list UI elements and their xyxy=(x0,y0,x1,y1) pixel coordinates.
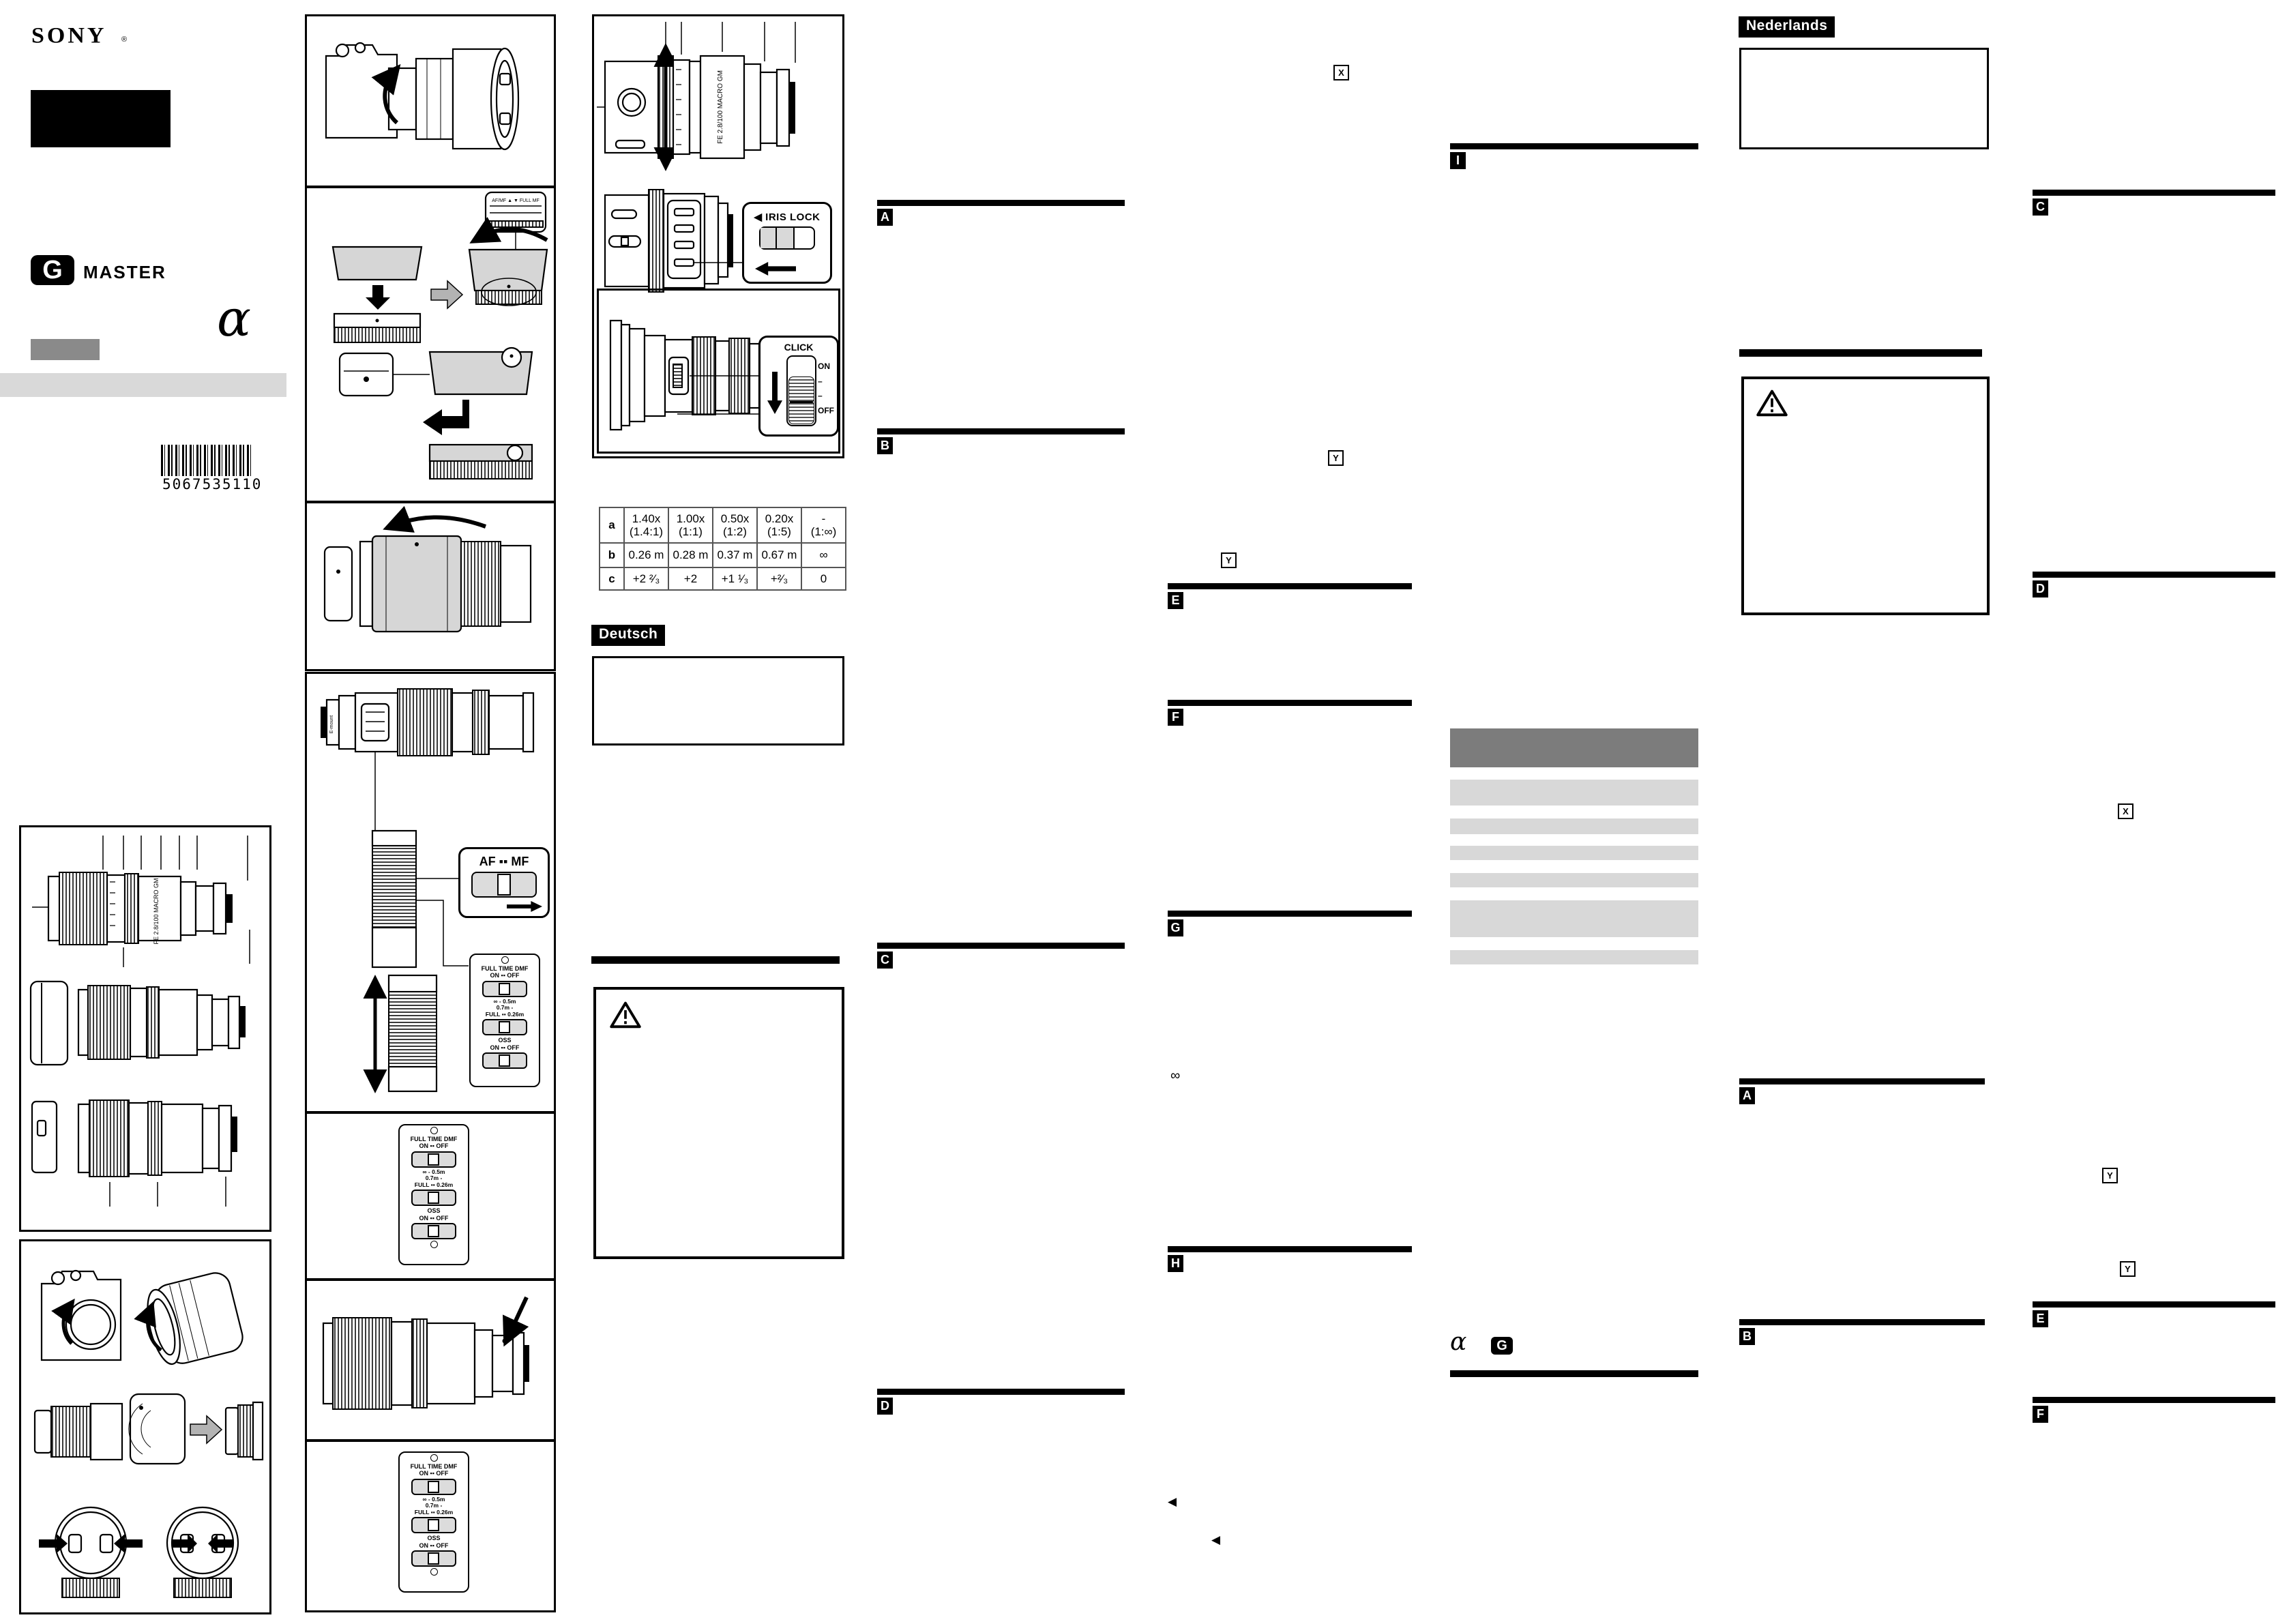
section-marker-c: C xyxy=(877,951,893,969)
iris-lock-callout: ◀ IRIS LOCK xyxy=(742,202,832,284)
section-marker-b: B xyxy=(1739,1328,1755,1345)
cell: +²⁄₃ xyxy=(757,567,801,590)
left-arrow-icon xyxy=(755,262,796,276)
oss-on-off-label: ON ▪▪ OFF xyxy=(400,1215,468,1222)
section-bar xyxy=(1168,700,1412,706)
camera-lens-drawing xyxy=(307,16,550,181)
iris-lock-label: ◀ IRIS LOCK xyxy=(744,211,830,223)
hood-attach-drawing: AF/MF ▲ ▼ FULL MF xyxy=(307,188,550,497)
full-time-dmf-label: FULL TIME DMF xyxy=(400,1463,468,1470)
section-bar xyxy=(877,428,1125,434)
section-bar xyxy=(1168,1246,1412,1252)
section-bar xyxy=(2033,1301,2275,1308)
click-label: CLICK xyxy=(760,342,837,353)
model-name-block xyxy=(31,90,171,147)
lens-name: FE 2.8/100 MACRO GM xyxy=(717,70,724,144)
section-marker-g: G xyxy=(1168,919,1183,936)
cell: 0.67 m xyxy=(757,543,801,567)
barcode xyxy=(161,445,251,476)
click-off-label: OFF xyxy=(818,404,834,419)
cell: 0.26 m xyxy=(624,543,668,567)
click-on-label: ON xyxy=(818,359,834,374)
lens-instruction-sheet: SONY ® G MASTER α 5067535110 FE 2.8/100 … xyxy=(0,0,2289,1624)
focus-limiter-switch xyxy=(411,1517,456,1533)
spec-table-header xyxy=(1450,728,1698,767)
spec-table-row xyxy=(1450,818,1698,834)
af-mf-callout: AF ▪▪ MF xyxy=(458,847,550,918)
cell: +2 ²⁄₃ xyxy=(624,567,668,590)
oss-switch xyxy=(482,1052,527,1069)
section-bar xyxy=(2033,1397,2275,1403)
range-label-3: FULL ▪▪ 0.26m xyxy=(400,1509,468,1516)
row-label-a: a xyxy=(600,507,624,543)
alpha-logo: α xyxy=(217,293,251,344)
section-marker-e: E xyxy=(2033,1310,2048,1327)
ref-marker-y: Y xyxy=(1328,450,1344,466)
section-marker-b: B xyxy=(877,437,893,454)
barcode-number: 5067535110 xyxy=(162,476,262,492)
switch-panel-2: FULL TIME DMF ON ▪▪ OFF ∞ - 0.5m 0.7m - … xyxy=(398,1124,469,1265)
section-bar xyxy=(2033,572,2275,578)
g-master-badge: G xyxy=(31,255,74,285)
screw-icon xyxy=(501,956,509,964)
cell: +2 xyxy=(668,567,713,590)
on-off-label: ON ▪▪ OFF xyxy=(400,1142,468,1149)
oss-label: OSS xyxy=(471,1037,539,1044)
page-edge-strip xyxy=(0,373,286,397)
section-marker-d: D xyxy=(877,1398,893,1415)
cell: 0.37 m xyxy=(713,543,757,567)
row-label-b: b xyxy=(600,543,624,567)
row-label-c: c xyxy=(600,567,624,590)
screw-icon xyxy=(430,1241,438,1248)
cell: 0.28 m xyxy=(668,543,713,567)
section-marker-e: E xyxy=(1168,592,1183,609)
screw-icon xyxy=(430,1127,438,1134)
oss-on-off-label: ON ▪▪ OFF xyxy=(471,1044,539,1051)
g-letter: G xyxy=(42,256,63,285)
lens-parts-drawing: FE 2.8/100 MACRO GM xyxy=(21,827,265,1226)
cell: 0.50x(1:2) xyxy=(713,507,757,543)
g-letter: G xyxy=(1496,1338,1507,1354)
mount-index-drawing xyxy=(307,1281,550,1435)
click-dash: – xyxy=(818,374,834,389)
ref-marker-x: X xyxy=(2118,803,2133,819)
mounting-drawing xyxy=(21,1241,265,1608)
section-bar xyxy=(1739,1319,1985,1325)
cell: -(1:∞) xyxy=(801,507,846,543)
ref-marker-y: Y xyxy=(2102,1168,2118,1183)
figure-mount-index xyxy=(305,1279,556,1441)
e-mount-text: E-mount xyxy=(329,715,334,734)
hood-scale-text: AF/MF ▲ ▼ FULL MF xyxy=(492,198,540,203)
on-off-label: ON ▪▪ OFF xyxy=(400,1470,468,1477)
section-bar xyxy=(1450,143,1698,149)
dmf-switch xyxy=(482,981,527,997)
section-marker-f: F xyxy=(2033,1406,2048,1423)
oss-label: OSS xyxy=(400,1535,468,1541)
dmf-switch xyxy=(411,1479,456,1495)
g-badge-small: G xyxy=(1491,1337,1513,1355)
click-slider xyxy=(786,355,816,426)
figure-camera-lens xyxy=(305,14,556,188)
ref-marker-y: Y xyxy=(2120,1261,2136,1277)
spec-table-row xyxy=(1450,873,1698,887)
left-triangle-glyph: ◀ xyxy=(1168,1495,1177,1509)
oss-switch xyxy=(411,1223,456,1239)
figure-lens-parts: FE 2.8/100 MACRO GM xyxy=(19,825,271,1232)
section-bar xyxy=(877,1389,1125,1395)
cell: 1.00x(1:1) xyxy=(668,507,713,543)
nederlands-intro-box xyxy=(1739,48,1989,149)
section-marker-a: A xyxy=(877,209,893,226)
alpha-logo-small: α xyxy=(1450,1330,1466,1355)
macro-ratio-table: a 1.40x(1.4:1) 1.00x(1:1) 0.50x(1:2) 0.2… xyxy=(599,507,846,591)
left-triangle-glyph: ◀ xyxy=(1211,1533,1220,1547)
language-label-nederlands: Nederlands xyxy=(1739,16,1835,38)
nederlands-warning-box xyxy=(1741,377,1990,615)
section-marker-i: I xyxy=(1450,152,1466,169)
section-bar xyxy=(2033,190,2275,196)
figure-hood-storage xyxy=(305,501,556,671)
screw-icon xyxy=(430,1568,438,1576)
spec-table-row xyxy=(1450,780,1698,806)
down-arrow-icon xyxy=(767,372,782,414)
right-arrow-icon xyxy=(507,901,542,912)
cell: ∞ xyxy=(801,543,846,567)
cell: +1 ¹⁄₃ xyxy=(713,567,757,590)
ref-marker-y: Y xyxy=(1221,552,1237,568)
section-bar xyxy=(1168,911,1412,917)
spec-table-row xyxy=(1450,900,1698,937)
section-bar xyxy=(877,943,1125,949)
screw-icon xyxy=(430,1454,438,1462)
gray-tag xyxy=(31,339,100,360)
deutsch-warning-box xyxy=(593,987,844,1259)
af-mf-switch xyxy=(471,872,537,898)
spec-table-row xyxy=(1450,950,1698,964)
section-bar xyxy=(877,200,1125,206)
infinity-symbol: ∞ xyxy=(1170,1068,1180,1084)
ref-marker-x: X xyxy=(1333,65,1349,80)
oss-switch xyxy=(411,1550,456,1567)
focus-limiter-switch xyxy=(411,1190,456,1206)
section-marker-d: D xyxy=(2033,580,2048,597)
oss-label: OSS xyxy=(400,1207,468,1214)
iris-lock-switch xyxy=(759,226,815,250)
full-time-dmf-label: FULL TIME DMF xyxy=(471,965,539,972)
af-mf-label: AF ▪▪ MF xyxy=(460,855,548,869)
dmf-switch xyxy=(411,1151,456,1168)
section-marker-f: F xyxy=(1168,709,1183,726)
hood-storage-drawing xyxy=(307,503,550,665)
switch-panel-1: FULL TIME DMF ON ▪▪ OFF ∞ - 0.5m 0.7m - … xyxy=(469,954,540,1087)
oss-on-off-label: ON ▪▪ OFF xyxy=(400,1542,468,1549)
nederlands-warning-bar xyxy=(1739,349,1982,357)
registered-mark: ® xyxy=(121,35,127,44)
on-off-label: ON ▪▪ OFF xyxy=(471,972,539,979)
lens-name-top: FE 2.8/100 MACRO GM xyxy=(153,878,160,944)
cell: 0.20x(1:5) xyxy=(757,507,801,543)
switch-panel-3: FULL TIME DMF ON ▪▪ OFF ∞ - 0.5m 0.7m - … xyxy=(398,1451,469,1593)
warning-triangle-icon xyxy=(610,1001,641,1029)
focus-limiter-switch xyxy=(482,1019,527,1035)
figure-mounting xyxy=(19,1239,271,1614)
full-time-dmf-label: FULL TIME DMF xyxy=(400,1136,468,1142)
section-marker-h: H xyxy=(1168,1255,1183,1272)
spec-table-row xyxy=(1450,846,1698,860)
section-marker-a: A xyxy=(1739,1087,1755,1104)
click-dash: – xyxy=(818,389,834,404)
cell: 1.40x(1.4:1) xyxy=(624,507,668,543)
section-heavy-bar xyxy=(1450,1370,1698,1377)
figure-hood-attach: AF/MF ▲ ▼ FULL MF xyxy=(305,186,556,503)
language-label-deutsch: Deutsch xyxy=(591,625,665,646)
sony-logo: SONY xyxy=(31,24,106,48)
deutsch-intro-box xyxy=(592,656,844,745)
section-marker-c: C xyxy=(2033,198,2048,216)
range-label-3: FULL ▪▪ 0.26m xyxy=(471,1012,539,1018)
g-master-text: MASTER xyxy=(83,262,166,283)
warning-triangle-icon xyxy=(1756,389,1788,417)
cell: 0 xyxy=(801,567,846,590)
click-callout: CLICK ON – – OFF xyxy=(758,336,839,437)
range-label-3: FULL ▪▪ 0.26m xyxy=(400,1182,468,1189)
section-bar xyxy=(1739,1078,1985,1084)
section-bar xyxy=(1168,583,1412,589)
deutsch-warning-bar xyxy=(591,956,840,964)
